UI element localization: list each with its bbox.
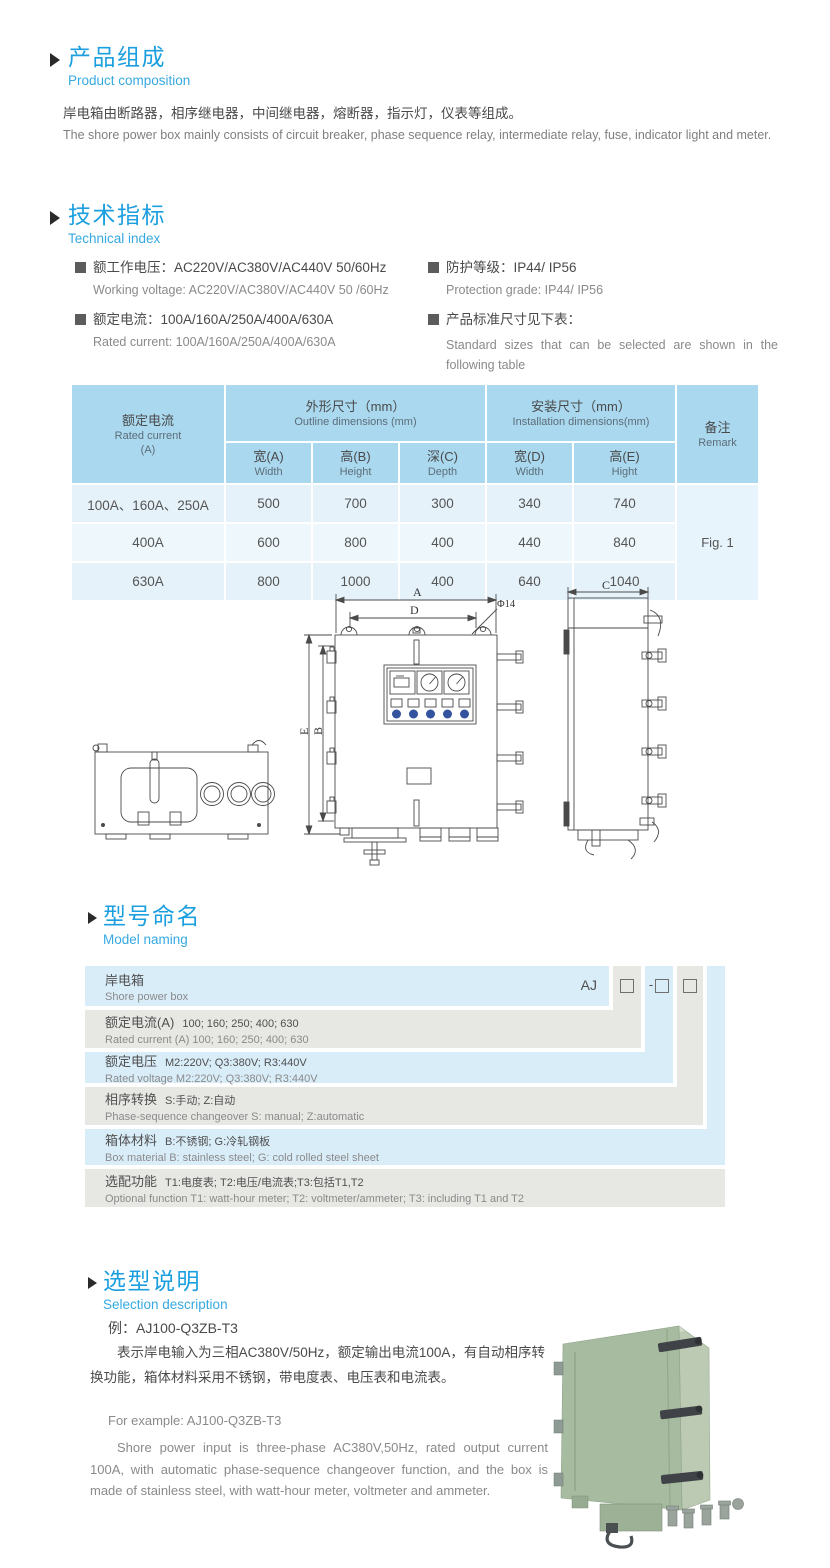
col-header-remark: 备注 Remark	[677, 385, 758, 483]
header-en: Remark	[677, 436, 758, 450]
latch-marks	[497, 651, 523, 813]
header-cn: 安装尺寸（mm）	[487, 398, 675, 415]
section-title-cn: 型号命名	[103, 903, 201, 929]
bottom-view-drawing	[93, 741, 275, 840]
dimension-table: 额定电流 Rated current (A) 外形尺寸（mm） Outline …	[70, 383, 760, 602]
section-title-en: Product composition	[68, 73, 190, 88]
section-title-en: Model naming	[103, 932, 201, 947]
group-header-outline: 外形尺寸（mm） Outline dimensions (mm)	[226, 385, 485, 441]
header-cn: 备注	[677, 419, 758, 436]
col-header-rated-current: 额定电流 Rated current (A)	[72, 385, 224, 483]
dash-glyph: -	[649, 979, 653, 991]
cabinet-illustration	[554, 1326, 744, 1547]
spec-cn-text: 额工作电压：AC220V/AC380V/AC440V 50/60Hz	[93, 260, 386, 275]
placeholder-box-icon	[683, 979, 697, 993]
placeholder-box-icon	[620, 979, 634, 993]
section-model-header: 型号命名 Model naming	[103, 903, 201, 947]
dim-label-e: E	[297, 728, 311, 735]
cell-depth: 400	[400, 524, 485, 561]
model-row-val: 100; 160; 250; 400; 630	[182, 1018, 298, 1030]
square-bullet-icon	[428, 314, 439, 325]
square-bullet-icon	[75, 314, 86, 325]
col-header-hight-e: 高(E)Hight	[574, 443, 675, 483]
cell-depth: 300	[400, 485, 485, 522]
spec-en-text: Working voltage: AC220V/AC380V/AC440V 50…	[93, 283, 389, 297]
section-title-cn: 技术指标	[68, 202, 166, 228]
selection-desc-cn: 表示岸电输入为三相AC380V/50Hz，额定输出电流100A，有自动相序转换功…	[90, 1341, 545, 1390]
cell-current: 400A	[72, 524, 224, 561]
section-selection-header: 选型说明 Selection description	[103, 1268, 228, 1312]
dim-label-c: C	[602, 578, 610, 592]
model-row-box-material: 箱体材料B:不锈钢; G:冷轧钢板 Box material B: stainl…	[85, 1129, 725, 1165]
dim-label-dia: Φ14	[497, 599, 516, 610]
cell-width: 500	[226, 485, 311, 522]
cell-install-hight: 840	[574, 524, 675, 561]
model-row-val: B:不锈钢; G:冷轧钢板	[165, 1136, 270, 1148]
cell-height: 700	[313, 485, 398, 522]
selection-example-en: For example: AJ100-Q3ZB-T3	[108, 1413, 281, 1428]
meter-panel-drawing	[384, 665, 476, 724]
selection-example-cn: 例：AJ100-Q3ZB-T3	[108, 1318, 238, 1338]
model-prefix: AJ	[581, 977, 597, 993]
section-bullet-icon	[50, 211, 60, 225]
table-row: 400A 600 800 400 440 840	[72, 524, 758, 561]
col-header-height-b: 高(B)Height	[313, 443, 398, 483]
front-view-drawing: A D Φ14 E B	[297, 585, 523, 865]
placeholder-box-icon	[655, 979, 669, 993]
header-cn: 外形尺寸（mm）	[226, 398, 485, 415]
cell-install-hight: 740	[574, 485, 675, 522]
model-row-val: M2:220V; Q3:380V; R3:440V	[165, 1057, 307, 1069]
section-title-en: Selection description	[103, 1297, 228, 1312]
header-en: Installation dimensions(mm)	[487, 415, 675, 429]
section-title-en: Technical index	[68, 231, 166, 246]
header-unit: (A)	[72, 443, 224, 457]
spec-cn-text: 产品标准尺寸见下表：	[446, 312, 581, 327]
technical-drawing: A D Φ14 E B	[0, 578, 830, 878]
product-photo-cabinet	[548, 1292, 825, 1567]
model-row-phase-changeover: 相序转换S:手动; Z:自动 Phase-sequence changeover…	[85, 1087, 703, 1125]
model-row-val: T1:电度表; T2:电压/电流表;T3:包括T1,T2	[165, 1177, 364, 1189]
model-naming-diagram: - 岸电箱 Shore power box AJ 额定电流(A)100; 160…	[85, 966, 727, 1208]
spec-cn-text: 防护等级：IP44/ IP56	[446, 260, 577, 275]
dim-label-b: B	[311, 727, 325, 735]
col-header-width-a: 宽(A)Width	[226, 443, 311, 483]
header-cn: 额定电流	[72, 412, 224, 429]
section-bullet-icon	[88, 1277, 97, 1289]
composition-desc-en: The shore power box mainly consists of c…	[63, 128, 783, 142]
square-bullet-icon	[428, 262, 439, 273]
header-en: Outline dimensions (mm)	[226, 415, 485, 429]
model-row-en: Rated voltage M2:220V; Q3:380V; R3:440V	[105, 1073, 673, 1085]
model-row-product: 岸电箱 Shore power box AJ	[85, 966, 609, 1006]
model-row-rated-current: 额定电流(A)100; 160; 250; 400; 630 Rated cur…	[85, 1010, 641, 1048]
section-composition-header: 产品组成 Product composition	[68, 44, 190, 88]
col-header-width-d: 宽(D)Width	[487, 443, 572, 483]
model-row-en: Rated current (A) 100; 160; 250; 400; 63…	[105, 1034, 641, 1046]
side-view-drawing: C	[564, 578, 666, 859]
model-row-cn: 岸电箱	[105, 970, 609, 989]
cell-current: 100A、160A、250A	[72, 485, 224, 522]
cell-height: 800	[313, 524, 398, 561]
section-tech-header: 技术指标 Technical index	[68, 202, 166, 246]
model-row-cn: 额定电流(A)	[105, 1015, 174, 1030]
spec-en-text: Protection grade: IP44/ IP56	[446, 283, 603, 297]
model-row-en: Optional function T1: watt-hour meter; T…	[105, 1193, 725, 1205]
group-header-install: 安装尺寸（mm） Installation dimensions(mm)	[487, 385, 675, 441]
spec-en-text: Standard sizes that can be selected are …	[446, 335, 778, 375]
catalog-page: 产品组成 Product composition 岸电箱由断路器，相序继电器，中…	[0, 0, 830, 1568]
spec-standard-sizes: 产品标准尺寸见下表： Standard sizes that can be se…	[428, 308, 778, 375]
dim-label-a: A	[413, 585, 422, 599]
model-row-cn: 额定电压	[105, 1054, 157, 1069]
table-row: 100A、160A、250A 500 700 300 340 740 Fig. …	[72, 485, 758, 522]
model-row-en: Shore power box	[105, 991, 609, 1003]
model-row-optional-function: 选配功能T1:电度表; T2:电压/电流表;T3:包括T1,T2 Optiona…	[85, 1169, 725, 1207]
model-row-en: Box material B: stainless steel; G: cold…	[105, 1152, 725, 1164]
col-header-depth-c: 深(C)Depth	[400, 443, 485, 483]
model-row-cn: 箱体材料	[105, 1133, 157, 1148]
spec-rated-current: 额定电流：100A/160A/250A/400A/630A Rated curr…	[75, 308, 336, 349]
model-row-val: S:手动; Z:自动	[165, 1095, 235, 1107]
cell-width: 600	[226, 524, 311, 561]
model-row-cn: 选配功能	[105, 1174, 157, 1189]
selection-desc-en: Shore power input is three-phase AC380V,…	[90, 1437, 548, 1502]
cell-install-width: 340	[487, 485, 572, 522]
spec-working-voltage: 额工作电压：AC220V/AC380V/AC440V 50/60Hz Worki…	[75, 256, 389, 297]
model-row-rated-voltage: 额定电压M2:220V; Q3:380V; R3:440V Rated volt…	[85, 1052, 673, 1083]
section-bullet-icon	[50, 53, 60, 67]
square-bullet-icon	[75, 262, 86, 273]
dim-label-d: D	[410, 603, 419, 617]
section-title-cn: 产品组成	[68, 44, 190, 70]
spec-protection-grade: 防护等级：IP44/ IP56 Protection grade: IP44/ …	[428, 256, 603, 297]
composition-desc-cn: 岸电箱由断路器，相序继电器，中间继电器，熔断器，指示灯，仪表等组成。	[63, 102, 763, 122]
header-en: Rated current	[72, 429, 224, 443]
cell-install-width: 440	[487, 524, 572, 561]
spec-en-text: Rated current: 100A/160A/250A/400A/630A	[93, 335, 336, 349]
section-title-cn: 选型说明	[103, 1268, 228, 1294]
spec-cn-text: 额定电流：100A/160A/250A/400A/630A	[93, 312, 333, 327]
section-bullet-icon	[88, 912, 97, 924]
model-row-cn: 相序转换	[105, 1092, 157, 1107]
model-row-en: Phase-sequence changeover S: manual; Z:a…	[105, 1111, 703, 1123]
